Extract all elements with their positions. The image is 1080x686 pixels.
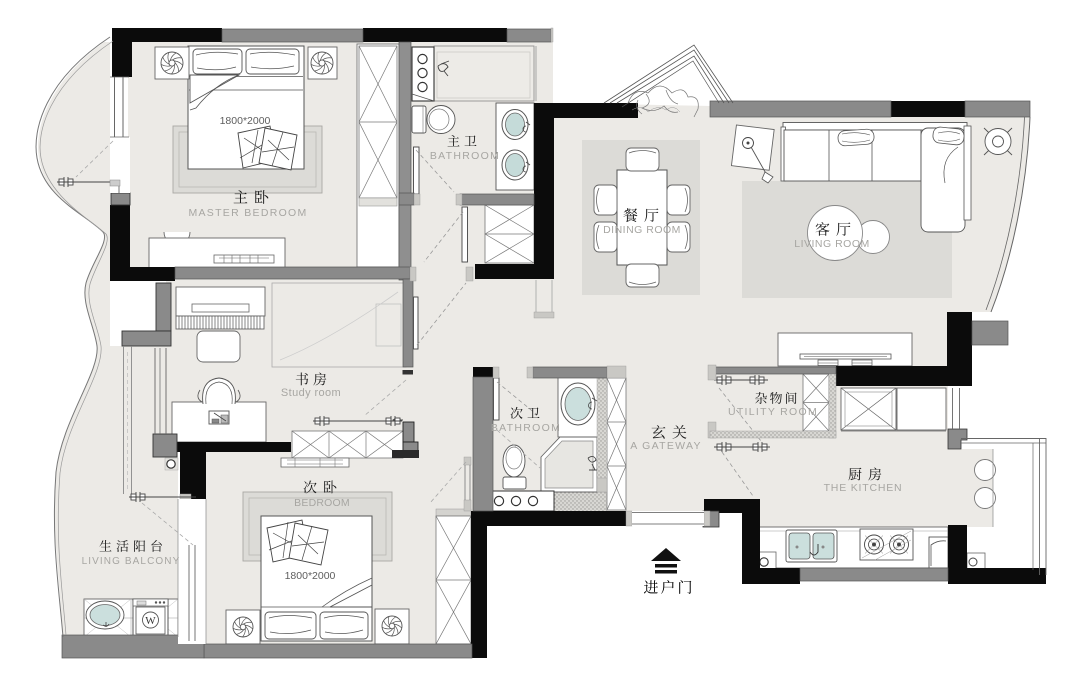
svg-text:BEDROOM: BEDROOM: [294, 497, 350, 509]
svg-text:LIVING BALCONY: LIVING BALCONY: [82, 556, 181, 567]
svg-text:THE KITCHEN: THE KITCHEN: [824, 482, 903, 494]
svg-text:W: W: [145, 615, 156, 627]
svg-text:UTILITY ROOM: UTILITY ROOM: [728, 406, 818, 418]
svg-text:LIVING ROOM: LIVING ROOM: [794, 238, 870, 250]
svg-text:A GATEWAY: A GATEWAY: [630, 440, 702, 452]
svg-text:Study room: Study room: [281, 387, 341, 399]
svg-text:DINING ROOM: DINING ROOM: [603, 224, 681, 236]
svg-text:BATHROOM: BATHROOM: [430, 150, 500, 162]
svg-text:MASTER BEDROOM: MASTER BEDROOM: [188, 207, 307, 219]
svg-text:1800*2000: 1800*2000: [285, 570, 336, 582]
svg-text:BATHROOM: BATHROOM: [491, 422, 561, 434]
svg-text:1800*2000: 1800*2000: [220, 115, 271, 127]
